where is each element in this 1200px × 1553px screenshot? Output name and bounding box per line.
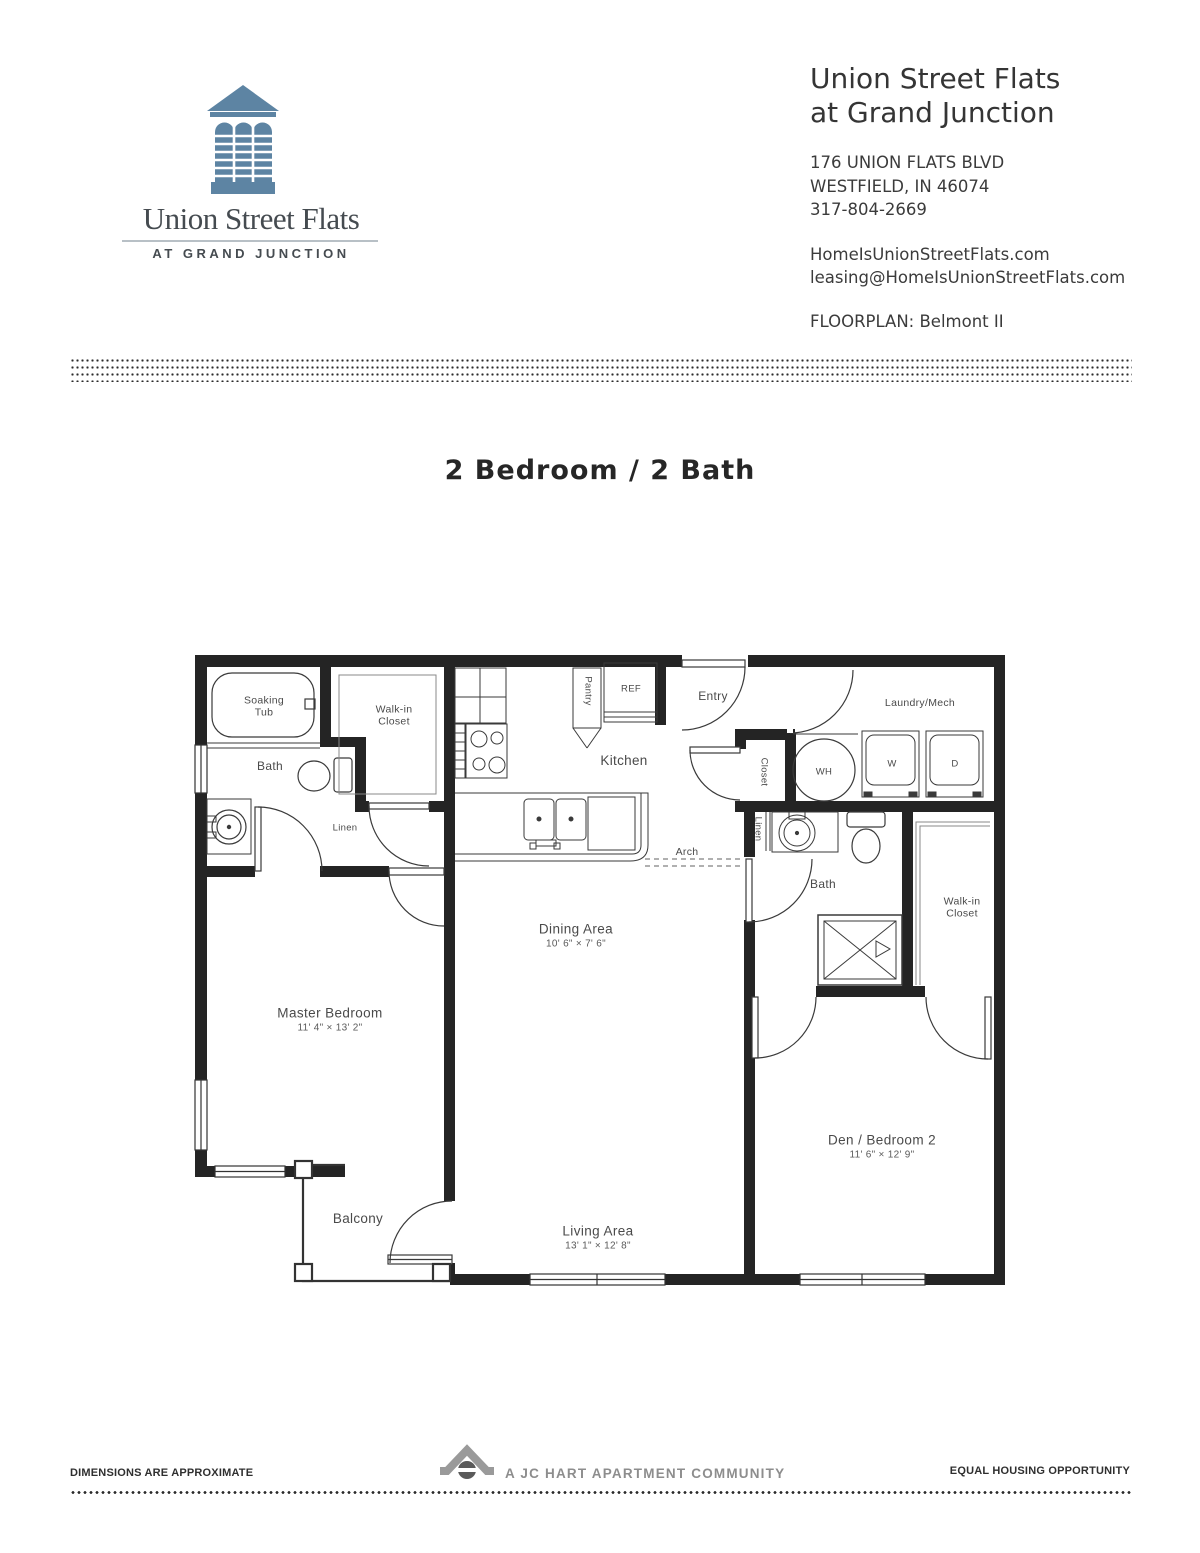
bath-1-door (255, 807, 322, 871)
balcony-door (388, 1201, 452, 1264)
laundry-door (787, 667, 853, 733)
toilet-1 (298, 758, 352, 792)
den-door (752, 997, 816, 1058)
entry-door (682, 660, 745, 730)
kitchen-upper-cabinets (455, 668, 506, 723)
master-bedroom-window-west (195, 1080, 207, 1150)
jc-hart-house-icon (437, 1430, 497, 1482)
walk-in-closet-1-trim (339, 675, 436, 794)
bath-2-door (746, 859, 812, 922)
vanity-sink-2 (772, 812, 838, 852)
linen-2-shelf (766, 812, 770, 851)
washer-fixture (862, 731, 919, 797)
dotted-rule-bottom (70, 1490, 1132, 1495)
dimensions-disclaimer: DIMENSIONS ARE APPROXIMATE (70, 1467, 253, 1479)
master-bedroom-window-south (215, 1166, 285, 1177)
bath-1-window (195, 745, 207, 793)
floorplan-drawing (0, 0, 1200, 1553)
walk-in-closet-2-door (926, 997, 991, 1059)
vanity-sink-1 (207, 799, 251, 854)
shower (818, 915, 902, 985)
master-bedroom-door (389, 868, 444, 926)
jc-hart-community-text: A JC HART APARTMENT COMMUNITY (505, 1466, 785, 1481)
stove (455, 724, 507, 778)
fixtures (207, 663, 990, 1281)
walk-in-closet-1-door (369, 803, 429, 866)
flyer-page: Union Street Flats AT GRAND JUNCTION Uni… (0, 0, 1200, 1553)
water-heater-fixture (793, 739, 855, 801)
hall-closet-door (690, 747, 740, 800)
windows (195, 745, 925, 1285)
walk-in-closet-2-trim (916, 822, 990, 985)
kitchen-counter (455, 793, 648, 861)
living-area-window (530, 1274, 665, 1285)
den-window (800, 1274, 925, 1285)
equal-housing-text: EQUAL HOUSING OPPORTUNITY (950, 1465, 1130, 1477)
toilet-2 (847, 812, 885, 863)
pantry-cabinet (573, 668, 601, 748)
kitchen-sink (524, 799, 586, 849)
arch-opening (645, 859, 744, 866)
dishwasher (588, 797, 635, 850)
refrigerator-fixture (604, 663, 657, 722)
soaking-tub-fixture (207, 673, 320, 748)
dryer-fixture (926, 731, 983, 797)
